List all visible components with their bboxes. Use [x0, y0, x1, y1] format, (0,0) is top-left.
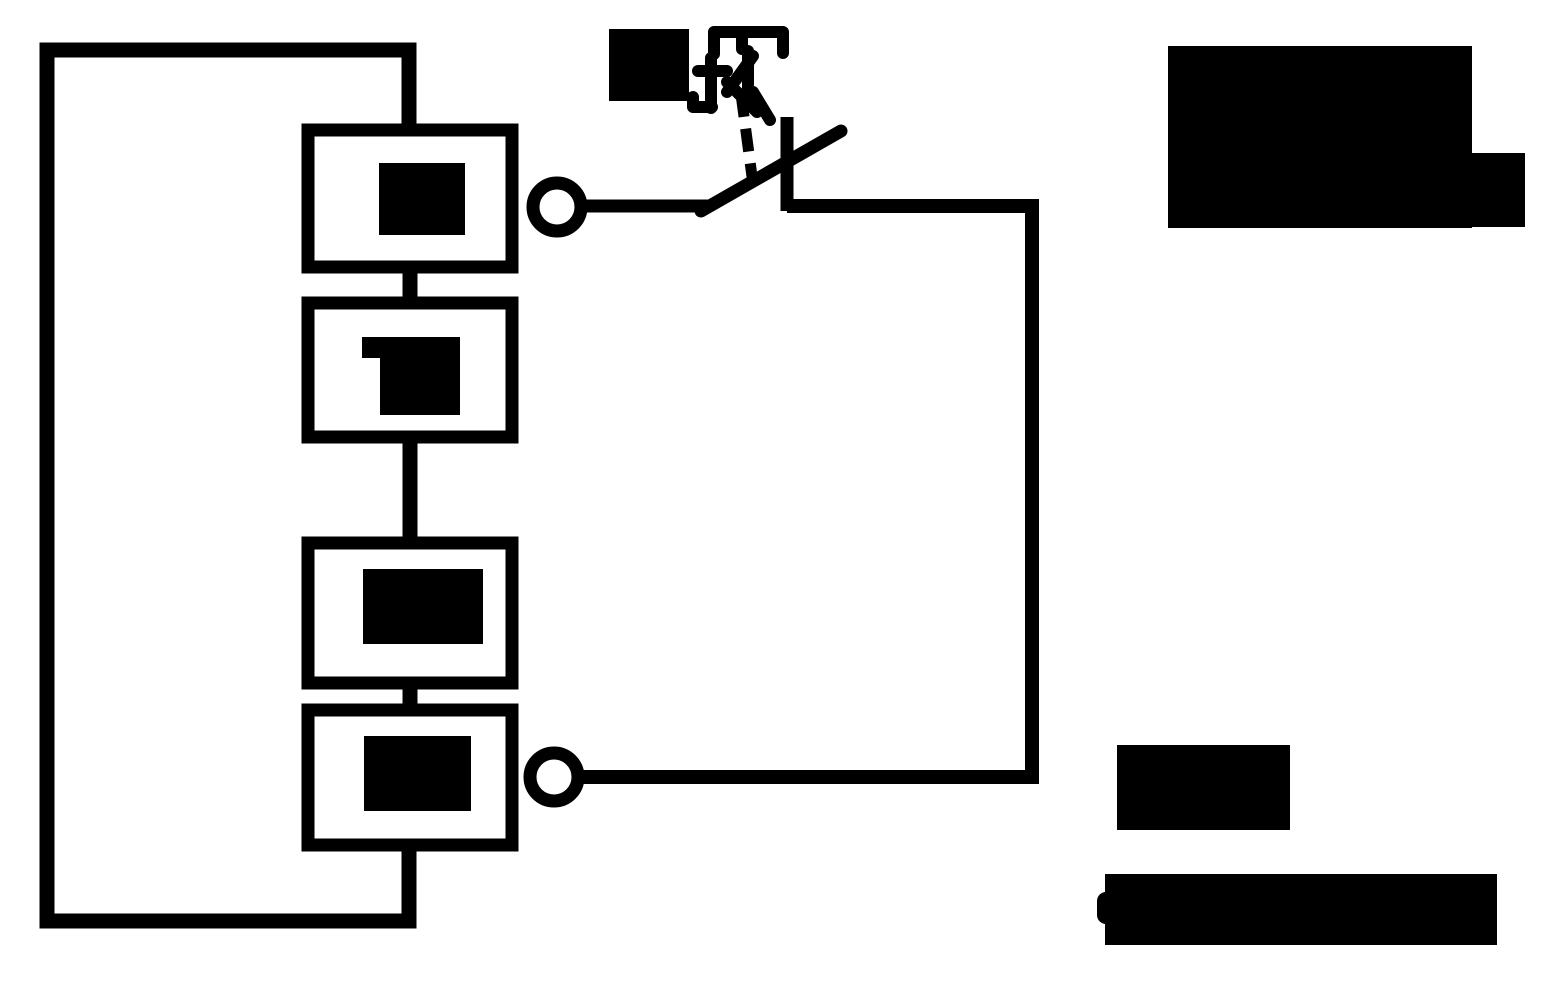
redacted-text-top-right-main — [1168, 46, 1472, 228]
diagram-page — [0, 0, 1546, 992]
redacted-text-bottom-right-2-bar — [1105, 874, 1497, 945]
circuit-diagram — [0, 0, 1546, 992]
redacted-label-3 — [363, 569, 483, 644]
right-return-wire — [580, 206, 1032, 777]
redacted-label-1 — [379, 163, 465, 235]
switch-label-redacted — [609, 29, 689, 101]
terminal-top-ring — [533, 183, 581, 231]
redacted-text-bottom-right-1 — [1117, 745, 1290, 830]
terminal-bottom-ring — [530, 753, 578, 801]
redacted-text-bottom-right-2 — [1097, 874, 1497, 945]
redacted-label-4 — [364, 736, 471, 811]
redacted-text-top-right — [1168, 46, 1525, 228]
redacted-text-top-right-ext — [1472, 153, 1525, 227]
